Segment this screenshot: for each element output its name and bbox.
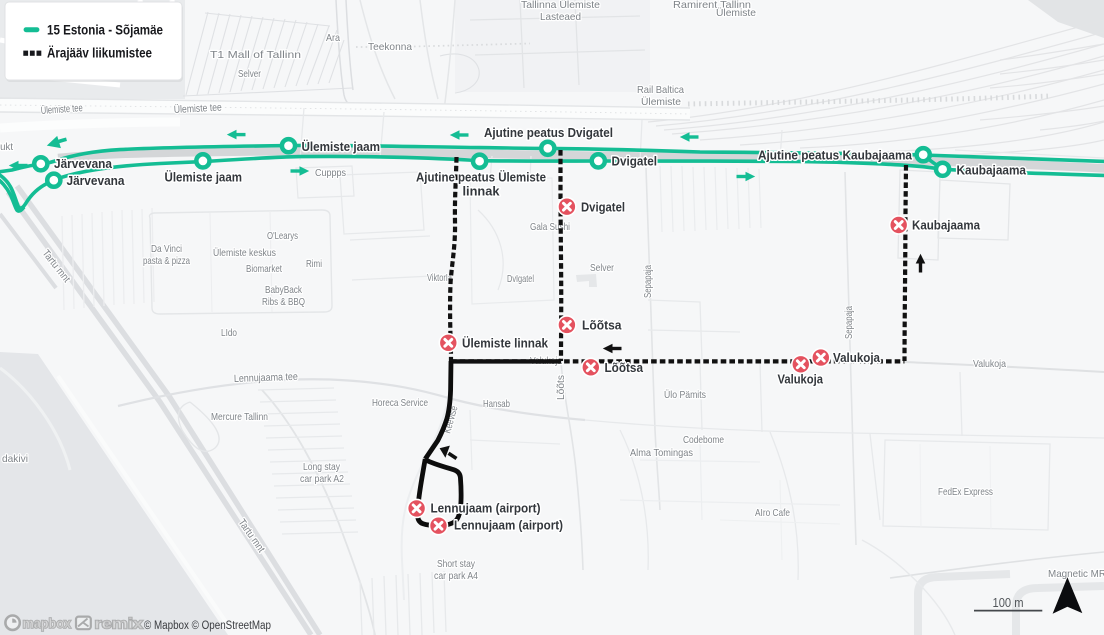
svg-text:T1 Mall of Tallinn: T1 Mall of Tallinn	[210, 49, 301, 61]
svg-text:Ülemiste linnak: Ülemiste linnak	[462, 335, 549, 350]
svg-text:Sepapaja: Sepapaja	[642, 265, 654, 298]
svg-text:Lennujaam (airport): Lennujaam (airport)	[431, 501, 541, 516]
svg-text:ViktorIa: ViktorIa	[427, 272, 452, 284]
svg-text:AIro Cafe: AIro Cafe	[755, 507, 790, 519]
svg-text:Valukoja: Valukoja	[973, 358, 1006, 370]
svg-text:100 m: 100 m	[993, 596, 1024, 610]
svg-text:Ülo Pämits: Ülo Pämits	[664, 389, 706, 401]
svg-text:Gala Sushi: Gala Sushi	[530, 221, 570, 233]
svg-text:Ajutine peatus Kaubajaama: Ajutine peatus Kaubajaama	[758, 147, 913, 162]
svg-text:15 Estonia - Sõjamäe: 15 Estonia - Sõjamäe	[47, 23, 163, 38]
svg-text:Ülemiste: Ülemiste	[716, 7, 756, 19]
svg-text:dakivi: dakivi	[2, 453, 28, 465]
svg-text:Lõõtsa: Lõõtsa	[605, 360, 644, 375]
svg-text:Järvevana: Järvevana	[67, 173, 126, 188]
svg-text:Rimi: Rimi	[306, 258, 322, 270]
svg-text:Short stay: Short stay	[437, 558, 476, 570]
svg-text:Cuppps: Cuppps	[315, 167, 346, 179]
svg-text:Selver: Selver	[590, 262, 614, 274]
svg-text:Long stay: Long stay	[303, 461, 341, 473]
svg-text:DvIgatel: DvIgatel	[507, 273, 534, 285]
svg-text:Valukoja: Valukoja	[833, 350, 881, 365]
svg-text:Järvevana: Järvevana	[54, 156, 113, 171]
svg-text:Mercure Tallinn: Mercure Tallinn	[211, 411, 268, 423]
svg-text:linnak: linnak	[463, 184, 501, 199]
svg-text:FedEx Express: FedEx Express	[938, 486, 993, 498]
svg-text:Dvigatel: Dvigatel	[581, 200, 625, 215]
svg-text:mapbox: mapbox	[23, 616, 72, 631]
svg-text:LIdo: LIdo	[221, 327, 237, 339]
svg-text:Ülemiste: Ülemiste	[641, 96, 681, 108]
svg-text:Lasteaed: Lasteaed	[540, 11, 581, 23]
svg-text:Kaubajaama: Kaubajaama	[912, 218, 981, 233]
svg-text:Ribs & BBQ: Ribs & BBQ	[262, 296, 305, 308]
svg-text:Ülemiste keskus: Ülemiste keskus	[213, 247, 276, 259]
svg-text:Lennujaama tee: Lennujaama tee	[234, 371, 299, 385]
svg-text:Hansab: Hansab	[483, 398, 510, 410]
svg-text:Lõõts: Lõõts	[555, 375, 567, 400]
svg-text:car park A2: car park A2	[300, 473, 344, 485]
svg-text:Magnetic MR: Magnetic MR	[1048, 568, 1104, 580]
svg-text:Da Vinci: Da Vinci	[151, 243, 182, 255]
svg-text:© Mapbox © OpenStreetMap: © Mapbox © OpenStreetMap	[144, 620, 271, 632]
svg-text:Dvigatel: Dvigatel	[612, 154, 658, 169]
svg-text:Biomarket: Biomarket	[246, 263, 282, 275]
svg-text:Horeca Service: Horeca Service	[372, 397, 428, 409]
svg-text:Lennujaam (airport): Lennujaam (airport)	[454, 518, 563, 533]
svg-text:Ülemiste jaam: Ülemiste jaam	[165, 169, 243, 184]
svg-text:Ülemiste jaam: Ülemiste jaam	[302, 139, 381, 154]
svg-text:Ülemiste tee: Ülemiste tee	[174, 101, 223, 116]
svg-text:Ajutine peatus Dvigatel: Ajutine peatus Dvigatel	[484, 125, 613, 140]
svg-text:remix: remix	[95, 616, 144, 632]
svg-text:Valukoja: Valukoja	[778, 371, 824, 386]
svg-text:Kaubajaama: Kaubajaama	[957, 163, 1027, 178]
svg-text:car park A4: car park A4	[434, 570, 478, 582]
svg-text:pasta & pizza: pasta & pizza	[143, 255, 190, 267]
svg-text:Rail Baltica: Rail Baltica	[637, 84, 684, 96]
svg-text:Alma Tomingas: Alma Tomingas	[630, 447, 693, 459]
svg-text:Selver: Selver	[238, 68, 261, 80]
svg-text:Codebome: Codebome	[683, 434, 724, 446]
svg-text:Ara: Ara	[326, 32, 340, 44]
svg-text:lukt: lukt	[0, 141, 13, 153]
svg-text:Sepapaja: Sepapaja	[843, 306, 855, 339]
svg-text:O'Learys: O'Learys	[267, 230, 298, 242]
svg-text:Teekonna: Teekonna	[368, 41, 412, 53]
svg-text:Ärajääv liikumistee: Ärajääv liikumistee	[47, 46, 152, 61]
svg-text:Tallinna Ülemiste: Tallinna Ülemiste	[521, 0, 600, 11]
svg-text:BabyBack: BabyBack	[265, 284, 303, 296]
svg-text:Lõõtsa: Lõõtsa	[582, 318, 622, 333]
svg-text:Ajutine peatus Ülemiste: Ajutine peatus Ülemiste	[416, 170, 546, 185]
